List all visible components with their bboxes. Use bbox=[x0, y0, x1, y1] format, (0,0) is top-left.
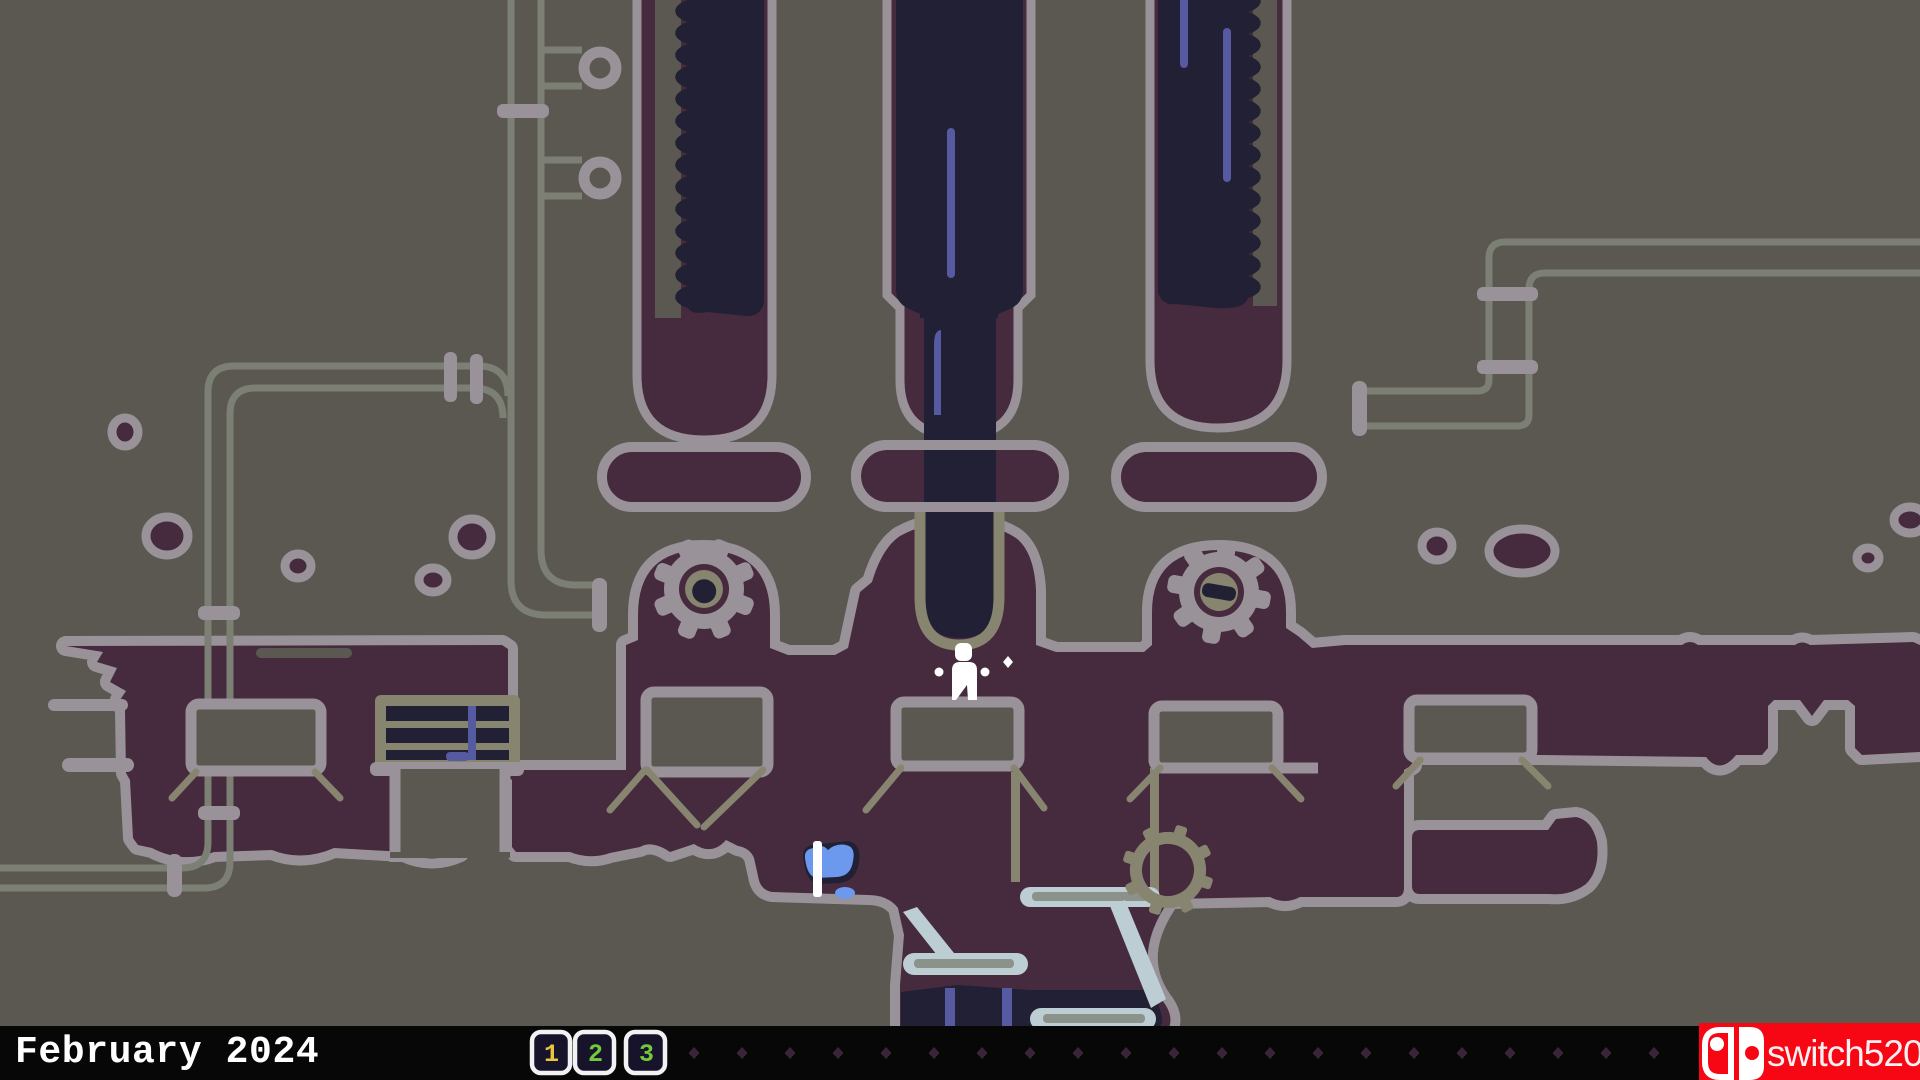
svg-text:switch520: switch520 bbox=[1767, 1033, 1920, 1074]
svg-text:1: 1 bbox=[544, 1040, 559, 1069]
svg-text:3: 3 bbox=[639, 1040, 654, 1069]
svg-text:February 2024: February 2024 bbox=[15, 1031, 319, 1074]
svg-text:2: 2 bbox=[588, 1040, 603, 1069]
